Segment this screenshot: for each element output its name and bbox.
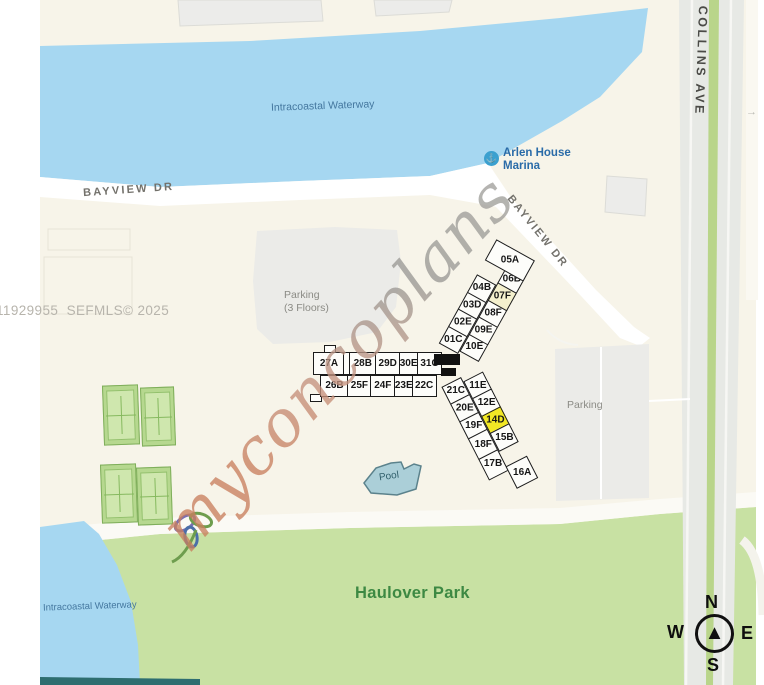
compass-east-label: E [741,623,753,644]
pool-shape [364,462,421,495]
parking-garage-area [253,227,401,344]
compass-west-label: W [667,622,684,643]
unit-26B: 26B [320,375,349,397]
building-top-center [374,0,452,16]
compass-arrow-icon: ▲ [705,623,725,643]
tennis-court [140,386,176,446]
unit-25F: 25F [347,375,371,397]
unit-row: 26B25F24F23E22C [320,375,437,397]
building-top-left [178,0,323,26]
site-plan-map: Intracoastal Waterway Intracoastal Water… [0,0,764,685]
building-faint-west-2 [44,257,132,314]
unit-29D: 29D [375,352,400,375]
building-faint-west-1 [48,229,130,250]
elevator-core [434,354,460,365]
map-shapes [0,0,764,685]
tennis-court [136,466,173,525]
tennis-court [102,384,140,445]
unit-row: 27A28B29D30E31C [313,352,442,375]
compass-north-label: N [705,592,718,613]
unit-28B: 28B [349,352,377,375]
parking-entrance-curve [547,330,578,345]
unit-27A: 27A [313,352,345,375]
compass-rose: N W E S ▲ [665,592,764,685]
unit-24F: 24F [370,375,396,397]
building-east [605,176,647,216]
water-area-top [40,8,648,187]
compass-circle: ▲ [695,614,734,653]
unit-22C: 22C [412,375,437,397]
side-road-strip [746,0,758,300]
unit-30E: 30E [399,352,419,375]
elevator-core [441,368,456,376]
compass-south-label: S [707,655,719,676]
anchor-icon: ⚓ [484,151,499,166]
unit-23E: 23E [394,375,413,397]
tennis-court [100,463,138,523]
